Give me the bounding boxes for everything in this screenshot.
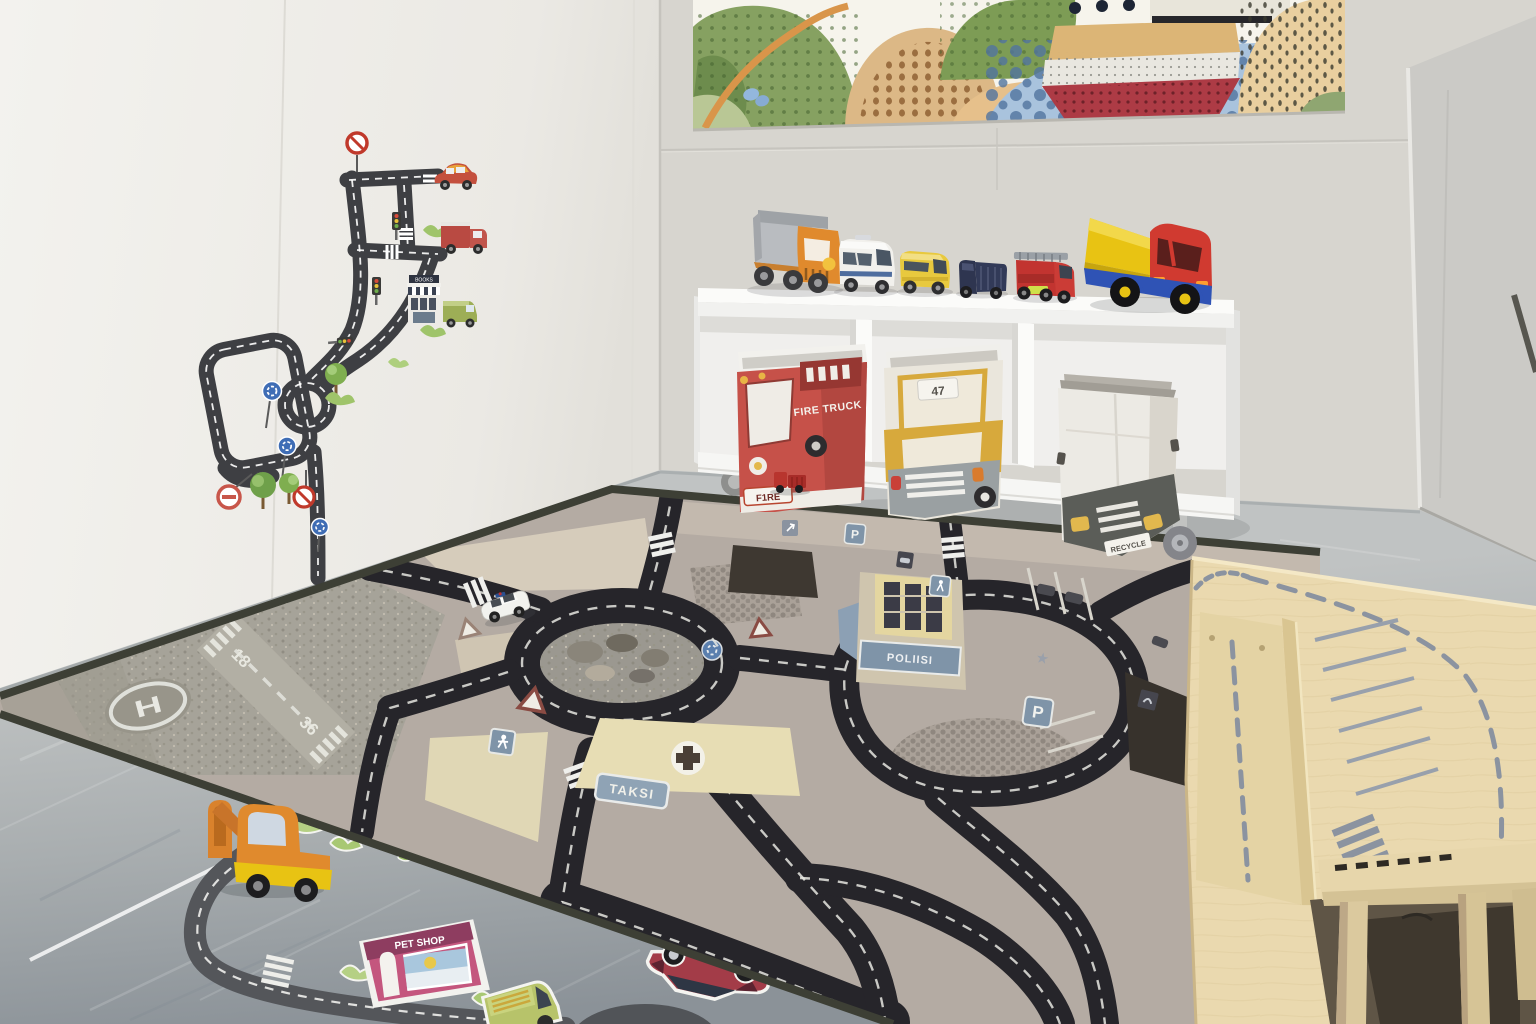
door[interactable]: [1408, 16, 1536, 600]
parking-sign-letter-2: P: [850, 527, 859, 542]
headlight: [823, 258, 836, 271]
windshield: [1059, 265, 1072, 279]
bin-school-bus[interactable]: 47: [884, 344, 1003, 520]
navy-box: [975, 262, 1007, 292]
roof-lightbar: [855, 235, 871, 240]
wooden-play-structure[interactable]: [1186, 558, 1536, 1024]
playroom-photo: BOOKS: [0, 0, 1536, 1024]
rug-dark-building: [728, 545, 818, 598]
toy-mini-truck[interactable]: [770, 472, 810, 496]
bin-bus-number: 47: [931, 384, 946, 399]
wall-art-painting: [685, 0, 1345, 135]
rug-roundabout-sign: [702, 640, 722, 660]
book-shop-sign: BOOKS: [415, 278, 433, 284]
bin-recycle-truck[interactable]: RECYCLE: [1056, 374, 1180, 557]
shelf-divider: [1018, 322, 1034, 468]
wooden-stool[interactable]: [1310, 843, 1536, 1024]
bin-bus-light-red: [891, 476, 901, 490]
crane-window: [248, 812, 286, 846]
ambulance-stripe: [840, 271, 892, 277]
bin-bus-light-orange: [972, 467, 984, 482]
playroom-scene-canvas: BOOKS: [0, 0, 1536, 1024]
windshield: [933, 259, 947, 274]
toy-rescue-van-yellow[interactable]: [897, 251, 953, 297]
windshield: [876, 249, 892, 266]
decal-book-shop: BOOKS: [407, 275, 441, 323]
shelf-right-side: [1226, 308, 1240, 516]
bin-fire-windshield: [746, 379, 793, 447]
toy-truck-navy[interactable]: [956, 260, 1008, 299]
